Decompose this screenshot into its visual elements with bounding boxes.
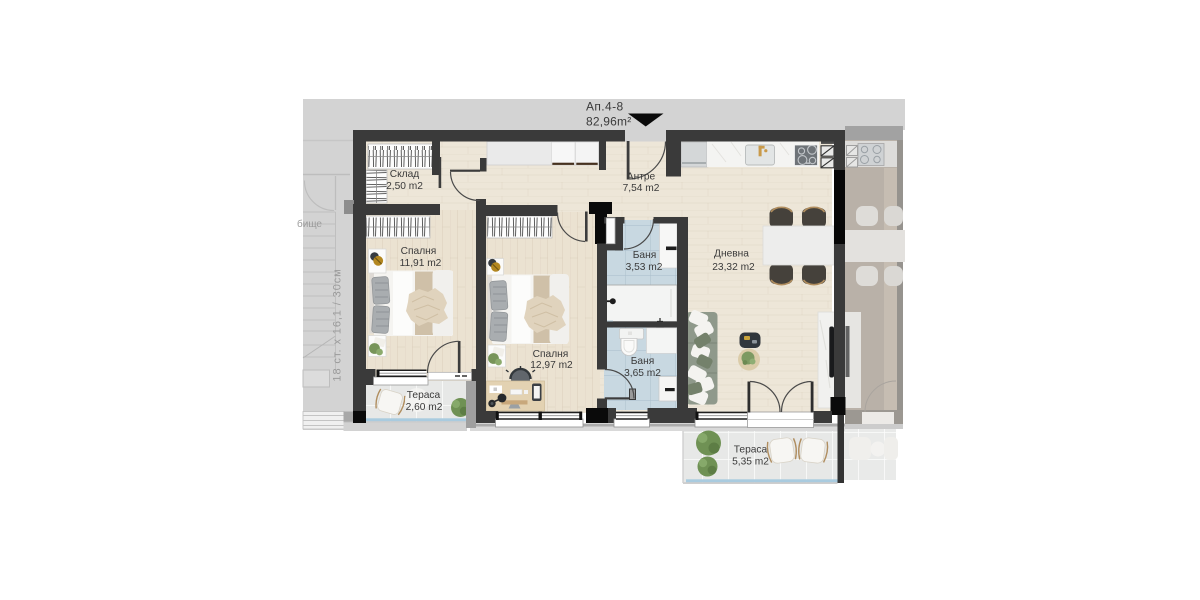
- svg-text:Ап.4-8: Ап.4-8: [586, 100, 624, 114]
- svg-text:18 ст. x 16,1 / 30см: 18 ст. x 16,1 / 30см: [332, 268, 344, 381]
- svg-text:82,96m²: 82,96m²: [586, 115, 631, 129]
- svg-text:Антре: Антре: [627, 172, 656, 183]
- svg-text:23,32 m2: 23,32 m2: [712, 262, 755, 273]
- svg-text:Спалня: Спалня: [533, 349, 569, 360]
- svg-text:Тераса: Тераса: [734, 445, 768, 456]
- svg-text:Склад: Склад: [390, 169, 420, 180]
- svg-text:2,50 m2: 2,50 m2: [386, 181, 423, 192]
- svg-text:Баня: Баня: [631, 356, 655, 367]
- svg-text:5,35 m2: 5,35 m2: [732, 457, 769, 468]
- svg-text:2,60 m2: 2,60 m2: [406, 402, 443, 413]
- svg-text:Тераса: Тераса: [407, 390, 441, 401]
- svg-text:11,91 m2: 11,91 m2: [400, 258, 442, 269]
- svg-text:3,65 m2: 3,65 m2: [624, 368, 661, 379]
- svg-text:12,97 m2: 12,97 m2: [530, 360, 573, 371]
- svg-text:7,54 m2: 7,54 m2: [623, 183, 660, 194]
- svg-text:Баня: Баня: [633, 250, 657, 261]
- svg-text:Спалня: Спалня: [401, 246, 437, 257]
- svg-text:Дневна: Дневна: [714, 249, 749, 260]
- svg-text:3,53 m2: 3,53 m2: [626, 262, 663, 273]
- svg-text:бище: бище: [297, 218, 322, 230]
